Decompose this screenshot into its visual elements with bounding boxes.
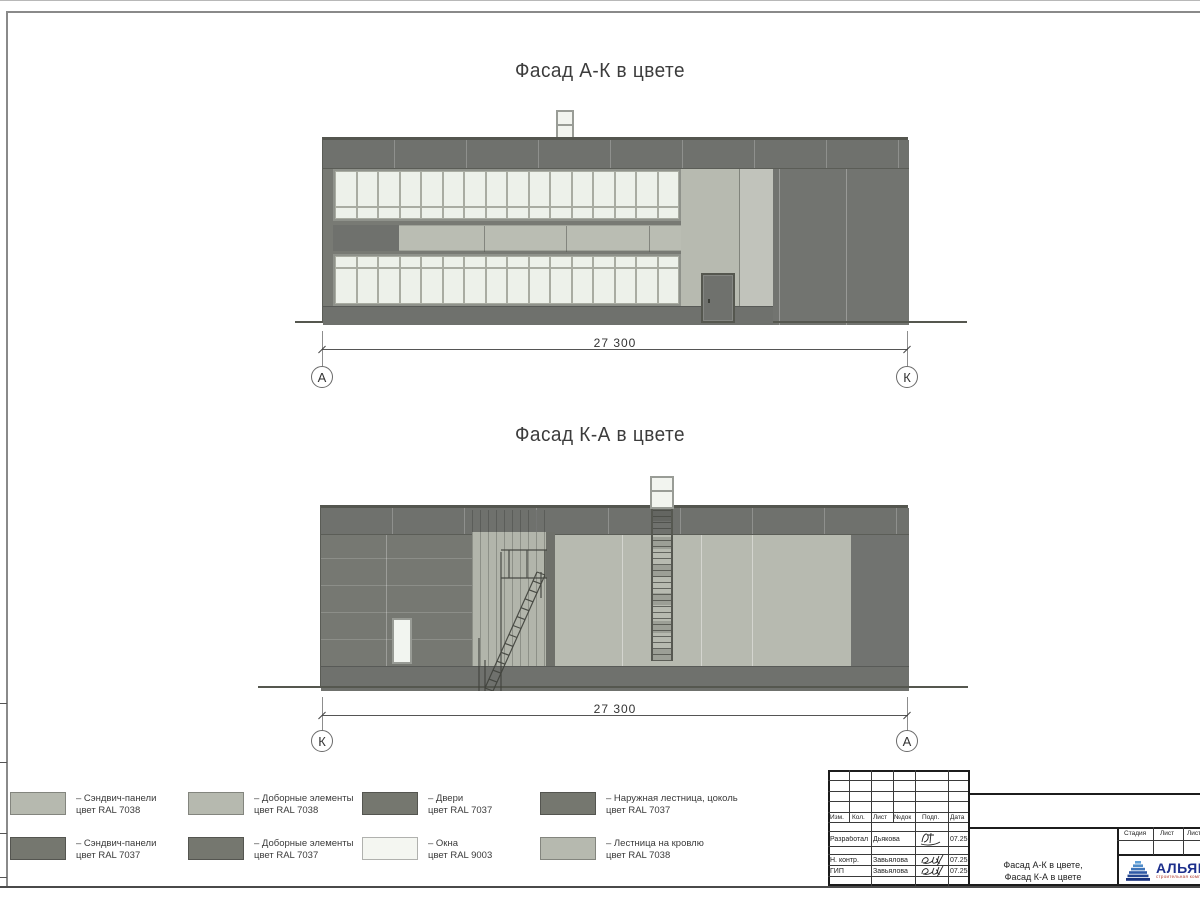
tb-col-izm: Изм.: [830, 814, 844, 821]
tb-name: Завьялова: [873, 857, 914, 864]
grid-marker-k: К: [311, 730, 333, 752]
facade-a-k-drawing: [322, 137, 908, 322]
fold-mark: [0, 877, 7, 878]
signature-icon: [918, 830, 946, 846]
grid-marker-a: А: [896, 730, 918, 752]
dark-panel-section: [851, 535, 909, 666]
legend-swatch: [540, 792, 596, 815]
entrance-door: [701, 273, 735, 323]
legend-swatch: [188, 792, 244, 815]
parapet-band: [321, 508, 909, 535]
legend-swatch: [10, 837, 66, 860]
parapet-band: [323, 140, 909, 169]
light-panel-section: [555, 535, 851, 666]
tb-name: Завьялова: [873, 868, 914, 875]
legend-label: – Дверицвет RAL 7037: [428, 793, 492, 816]
fold-mark: [0, 762, 7, 763]
legend-label: – Лестница на кровлюцвет RAL 7038: [606, 838, 704, 861]
dimension-value: 27 300: [322, 702, 908, 716]
legend-swatch: [540, 837, 596, 860]
legend-label: – Доборные элементыцвет RAL 7038: [254, 793, 353, 816]
legend-swatch: [362, 792, 418, 815]
tb-col-sheet: Лист: [1160, 830, 1174, 837]
dimension-value: 27 300: [322, 336, 908, 350]
drawing-sheet: { "titles": { "facade1": "Фасад А-К в цв…: [0, 0, 1200, 900]
tb-date: 07.25: [950, 836, 968, 843]
fold-mark: [0, 833, 7, 834]
tb-col-data: Дата: [950, 814, 964, 821]
window-band-upper: [333, 169, 681, 221]
company-logo: АЛЬЯНС строительная компания: [1117, 855, 1200, 886]
window-band-lower: [333, 254, 681, 306]
signature-icon: [920, 855, 946, 866]
spandrel-light-strip: [399, 225, 681, 251]
facade-k-a-drawing: [320, 505, 908, 688]
door-handle: [708, 299, 710, 303]
legend-swatch: [362, 837, 418, 860]
tb-role: Разработал: [830, 836, 871, 843]
spandrel-dark-panel: [333, 225, 399, 251]
tb-role: Н. контр.: [830, 857, 871, 864]
roof-hatch: [650, 476, 674, 509]
tb-date: 07.25: [950, 857, 968, 864]
roof-access-ladder: [651, 509, 673, 661]
roof-hatch: [556, 110, 574, 139]
company-tagline: строительная компания: [1156, 874, 1200, 879]
stair-tower-mullions-top: [472, 510, 546, 532]
tb-col-list: Лист: [873, 814, 887, 821]
small-window: [392, 618, 412, 664]
legend-label: – Сэндвич-панелицвет RAL 7038: [76, 793, 156, 816]
title-block: Изм. Кол. Лист №док Подп. Дата Разработа…: [828, 770, 1200, 886]
grid-marker-a: А: [311, 366, 333, 388]
tb-name: Дьякова: [873, 836, 914, 843]
sheet-edge: [0, 0, 1200, 1]
facade2-title: Фасад К-А в цвете: [30, 424, 1170, 447]
company-name: АЛЬЯНС: [1156, 862, 1200, 874]
legend-label: – Окнацвет RAL 9003: [428, 838, 492, 861]
legend-label: – Наружная лестница, цокольцвет RAL 7037: [606, 793, 738, 816]
legend-swatch: [10, 792, 66, 815]
tb-col-podp: Подп.: [922, 814, 939, 821]
tb-col-sheets: Листов: [1187, 830, 1200, 837]
facade1-title: Фасад А-К в цвете: [30, 60, 1170, 83]
frame-border-top: [6, 11, 1200, 13]
external-staircase: [471, 538, 561, 691]
legend-label: – Доборные элементыцвет RAL 7037: [254, 838, 353, 861]
legend-label: – Сэндвич-панелицвет RAL 7037: [76, 838, 156, 861]
tb-col-stage: Стадия: [1124, 830, 1146, 837]
pyramid-logo-icon: [1125, 859, 1151, 883]
fold-mark: [0, 703, 7, 704]
tb-col-kol: Кол.: [852, 814, 865, 821]
tb-role: ГИП: [830, 868, 871, 875]
frame-border-left: [6, 11, 8, 888]
ground-line: [258, 686, 968, 688]
grid-marker-k: К: [896, 366, 918, 388]
legend-swatch: [188, 837, 244, 860]
tb-col-ndok: №док: [894, 814, 911, 821]
frame-border-bottom: [0, 886, 1200, 888]
tb-date: 07.25: [950, 868, 968, 875]
signature-icon: [920, 866, 946, 877]
dark-panel-section: [773, 169, 909, 325]
document-title: Фасад А-К в цвете, Фасад К-А в цвете: [969, 828, 1117, 886]
